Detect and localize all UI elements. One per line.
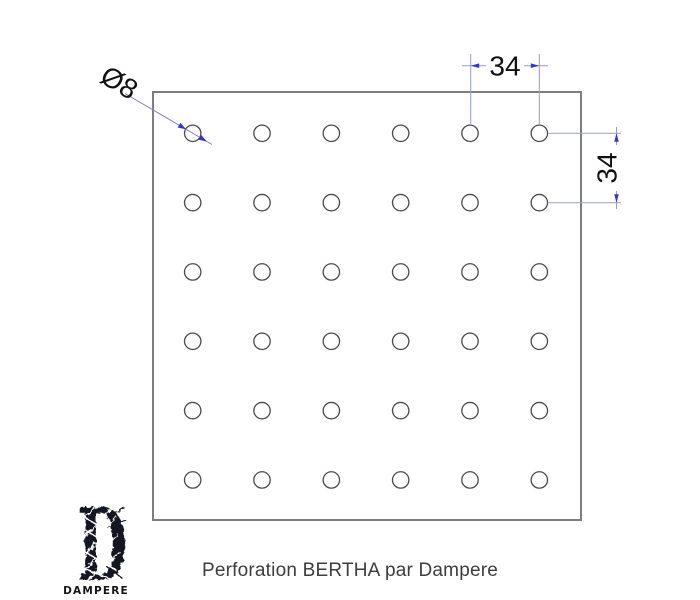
hole <box>462 264 478 280</box>
hole <box>392 472 408 488</box>
hole <box>254 194 270 210</box>
hole <box>392 264 408 280</box>
hole <box>254 333 270 349</box>
hole <box>185 333 201 349</box>
hole <box>462 194 478 210</box>
caption: Perforation BERTHA par Dampere <box>140 560 560 582</box>
arrowhead-icon <box>614 133 619 142</box>
hole <box>531 472 547 488</box>
hole <box>531 125 547 141</box>
dampere-logo: D <box>60 504 132 597</box>
hole <box>254 472 270 488</box>
arrowhead-icon <box>531 63 540 68</box>
hole <box>323 194 339 210</box>
hole <box>185 472 201 488</box>
hole <box>185 402 201 418</box>
dampere-logo-mark: D <box>64 504 128 586</box>
arrowhead-icon <box>471 63 480 68</box>
hole <box>531 194 547 210</box>
hole <box>323 472 339 488</box>
hole <box>531 402 547 418</box>
dimension-vertical-value: 34 <box>592 152 623 183</box>
hole <box>531 264 547 280</box>
hole <box>254 125 270 141</box>
arrowhead-icon <box>614 194 619 203</box>
hole <box>323 264 339 280</box>
logo-letter-d: D <box>77 504 127 586</box>
plate-outline <box>153 92 581 520</box>
hole <box>185 264 201 280</box>
hole <box>254 402 270 418</box>
hole <box>323 402 339 418</box>
hole <box>392 333 408 349</box>
hole <box>323 125 339 141</box>
hole <box>392 194 408 210</box>
hole <box>254 264 270 280</box>
hole <box>462 472 478 488</box>
hole <box>531 333 547 349</box>
hole <box>185 194 201 210</box>
hole <box>323 333 339 349</box>
drawing-canvas: 34 34 Ø8 <box>0 0 700 600</box>
hole <box>462 402 478 418</box>
hole <box>462 125 478 141</box>
dampere-logo-text: DAMPERE <box>60 585 132 597</box>
hole <box>392 125 408 141</box>
dimension-horizontal-value: 34 <box>489 51 520 82</box>
hole <box>392 402 408 418</box>
hole <box>462 333 478 349</box>
hole-diameter-label: Ø8 <box>95 60 143 106</box>
